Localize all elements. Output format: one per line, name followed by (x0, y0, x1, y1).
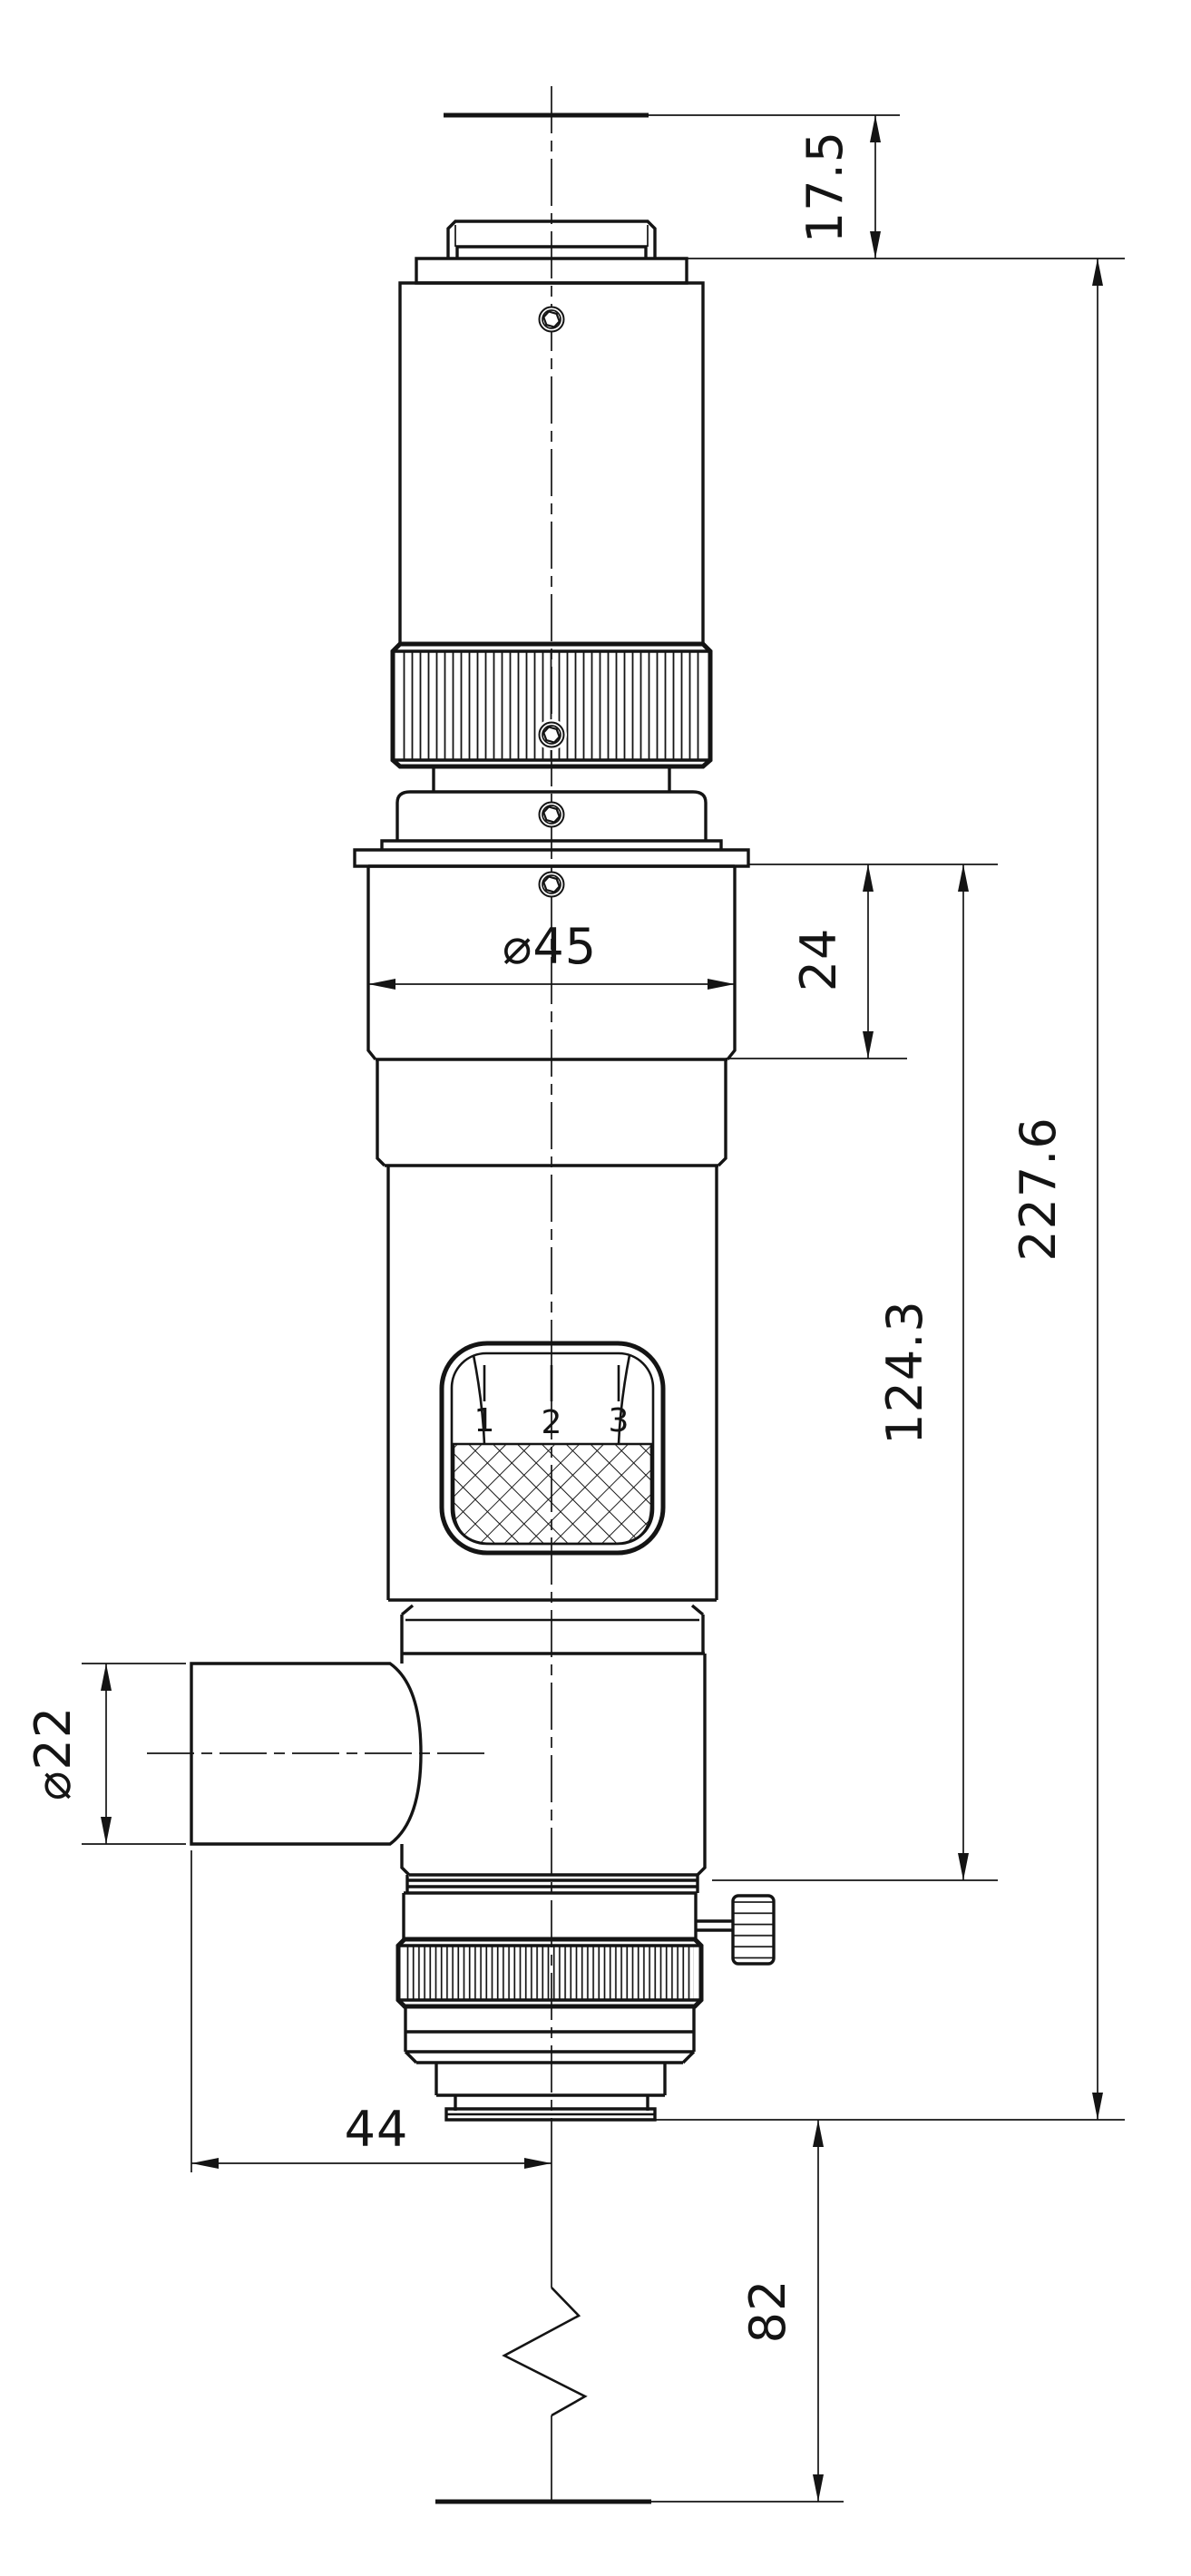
arrow-up-icon (870, 115, 881, 142)
dim-17-5-text: 17.5 (796, 131, 854, 243)
arrow-down-icon (870, 231, 881, 259)
set-screw-collar (540, 803, 564, 827)
dimension-124-3: 124.3 (712, 864, 998, 1880)
dimension-82: 82 (739, 2120, 824, 2502)
dim-diameter-22-text: ⌀22 (24, 1706, 82, 1800)
port-block (147, 1654, 705, 1875)
lower-chamfer (405, 2052, 694, 2063)
dim-44-text: 44 (345, 2101, 409, 2158)
arrow-down-icon (101, 1817, 112, 1844)
port-block-outline (402, 1654, 705, 1875)
arrow-right-icon (524, 2158, 552, 2169)
lower-drum (405, 2006, 694, 2052)
arrow-down-icon (958, 1853, 969, 1880)
arrow-down-icon (863, 1031, 874, 1059)
dim-124-3-text: 124.3 (876, 1300, 933, 1445)
step-1 (436, 2063, 665, 2095)
arrow-up-icon (1092, 259, 1103, 286)
turret-position-1-label: 1 (474, 1402, 495, 1439)
dim-227-6-text: 227.6 (1010, 1117, 1067, 1262)
arrow-up-icon (958, 864, 969, 892)
set-screw-body45 (540, 873, 564, 897)
dimension-24: 24 (726, 864, 998, 1059)
set-screw-top (540, 307, 564, 332)
clamp-band (407, 1875, 698, 1893)
turret-housing: 1 2 3 (388, 1166, 717, 1600)
nosepiece-steps (405, 2006, 694, 2120)
knurl-hatch-lower (405, 1946, 694, 2000)
arrow-up-icon (813, 2120, 824, 2147)
drawing-sheet: ⌀45 1 2 3 (0, 0, 1191, 2576)
set-screw-knurl (540, 723, 564, 747)
arrow-left-icon (191, 2158, 219, 2169)
turret-position-2-label: 2 (542, 1404, 562, 1441)
dim-24-text: 24 (790, 928, 847, 992)
dimension-17-5: 17.5 (687, 115, 1125, 259)
lower-knurled-ring (398, 1939, 701, 2006)
arrow-left-icon (368, 979, 395, 990)
center-axis (504, 86, 585, 2502)
dim-82-text: 82 (739, 2279, 796, 2344)
dimension-44: 44 (191, 1850, 552, 2172)
turret-index-ticks (484, 1365, 619, 1401)
dimension-227-6: 227.6 (655, 259, 1125, 2120)
thumbscrew-knob (733, 1896, 774, 1964)
thumbscrew-stem (696, 1921, 733, 1930)
arrow-up-icon (101, 1664, 112, 1691)
turret-position-3-label: 3 (609, 1402, 630, 1439)
arrow-right-icon (708, 979, 735, 990)
upper-knurled-ring (393, 644, 710, 766)
turret-lower-collar (402, 1605, 705, 1654)
clamp-ring (404, 1893, 696, 1939)
break-zigzag (504, 2288, 585, 2415)
turret-knurl-crosshatch (454, 1444, 651, 1544)
arrow-down-icon (1092, 2093, 1103, 2120)
collar2-edges (402, 1605, 703, 1654)
technical-drawing: ⌀45 1 2 3 (0, 0, 1191, 2576)
arrow-up-icon (863, 864, 874, 892)
dim-diameter-45-text: ⌀45 (503, 918, 597, 975)
arrow-down-icon (813, 2474, 824, 2502)
